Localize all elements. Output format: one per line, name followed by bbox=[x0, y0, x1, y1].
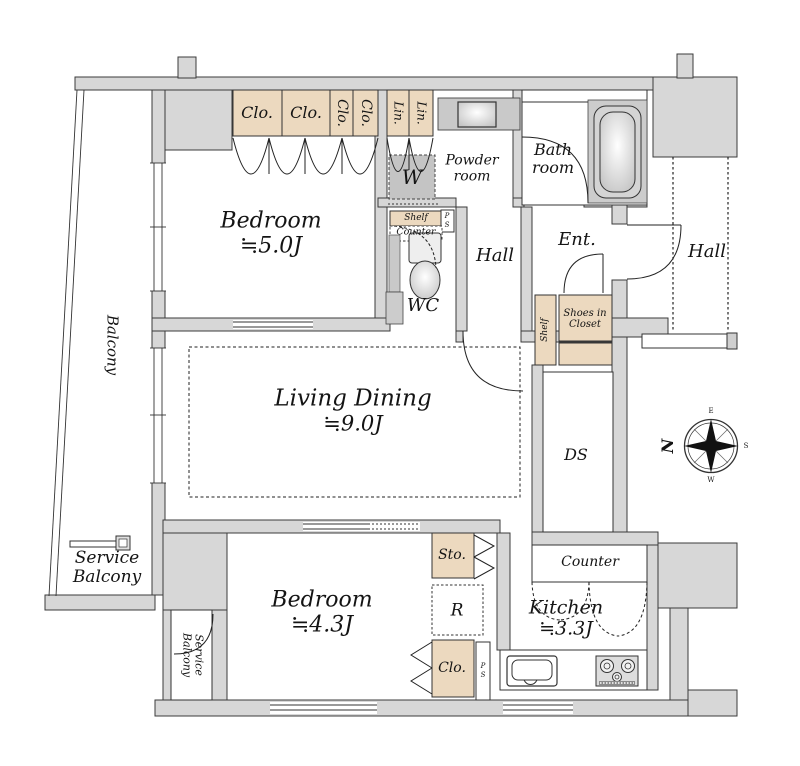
closet5-label: Clo. bbox=[438, 661, 466, 677]
kitchen-counter-label: Counter bbox=[561, 555, 619, 571]
wc-shelf-label: Shelf bbox=[404, 213, 428, 223]
ps-top-label: P S bbox=[445, 212, 450, 230]
balcony-label: Balcony bbox=[104, 315, 121, 375]
wc-label: WC bbox=[407, 296, 439, 316]
powder-room-label: Powder room bbox=[445, 153, 498, 184]
shoes-shelf-label: Shelf bbox=[540, 318, 550, 342]
hall-outer-label: Hall bbox=[688, 242, 726, 262]
linen1-label: Lin. bbox=[391, 101, 404, 124]
service-balcony-small-label: Service Balcony bbox=[180, 633, 205, 677]
storage-folding-door bbox=[474, 535, 494, 579]
storage-label: Sto. bbox=[438, 548, 466, 564]
kitchen-label: Kitchen ≒3.3J bbox=[529, 598, 603, 641]
wc-counter-label: Counter bbox=[396, 228, 435, 239]
compass-east-label: E bbox=[708, 408, 713, 416]
shoes-closet-door bbox=[564, 254, 603, 293]
washbasin-icon bbox=[458, 102, 496, 127]
balcony-railing bbox=[49, 90, 84, 596]
service-balcony-label: Service Balcony bbox=[73, 549, 141, 587]
compass-south-label: S bbox=[744, 443, 749, 451]
refrigerator-label: R bbox=[451, 601, 464, 620]
floor-plan: Balcony Service Balcony Service Balcony … bbox=[0, 0, 800, 766]
compass-icon bbox=[684, 419, 738, 473]
hall-inner-label: Hall bbox=[476, 246, 514, 266]
closet4-label: Clo. bbox=[357, 99, 373, 127]
washer-label: W bbox=[402, 166, 423, 188]
stove-icon bbox=[596, 656, 638, 686]
closet3-label: Clo. bbox=[333, 99, 349, 127]
living-dining-label: Living Dining ≒9.0J bbox=[274, 386, 431, 435]
closet2-label: Clo. bbox=[290, 104, 322, 122]
ps-bottom-label: P S bbox=[481, 662, 486, 680]
closet-folding-door bbox=[411, 642, 432, 694]
compass-west-label: W bbox=[707, 477, 714, 485]
closet1-label: Clo. bbox=[241, 104, 273, 122]
entrance-label: Ent. bbox=[558, 230, 596, 250]
ds-label: DS bbox=[564, 446, 588, 464]
shoes-closet-label: Shoes in Closet bbox=[563, 308, 606, 330]
living-door bbox=[463, 331, 523, 391]
linen2-label: Lin. bbox=[414, 101, 427, 124]
bedroom2-label: Bedroom ≒4.3J bbox=[271, 588, 372, 637]
bedroom1-label: Bedroom ≒5.0J bbox=[220, 209, 321, 258]
bathroom-label: Bath room bbox=[532, 141, 574, 177]
compass-north-label: N bbox=[659, 439, 677, 454]
